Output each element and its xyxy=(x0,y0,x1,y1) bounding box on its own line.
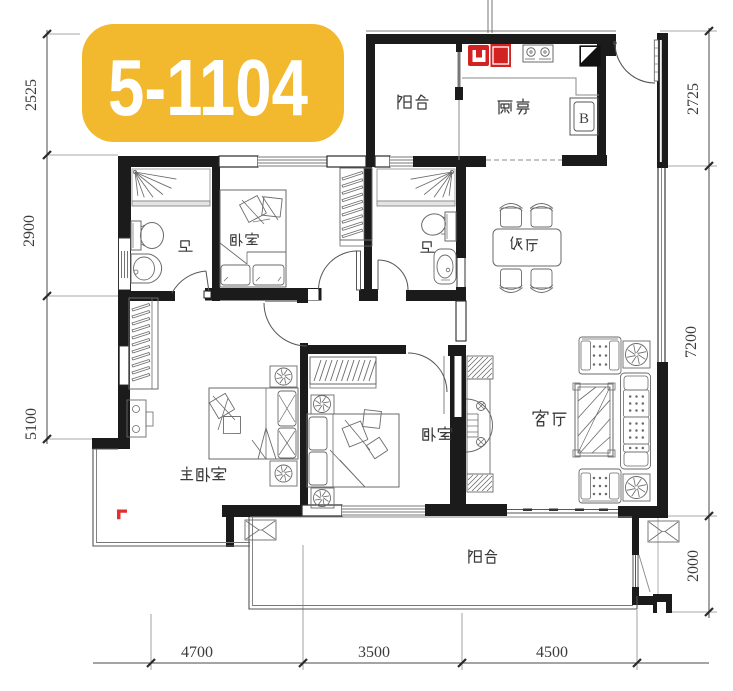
svg-text:2725: 2725 xyxy=(685,83,702,115)
svg-text:B: B xyxy=(579,111,589,127)
svg-text:2900: 2900 xyxy=(21,215,38,247)
svg-text:3500: 3500 xyxy=(358,644,390,661)
svg-text:4700: 4700 xyxy=(181,644,213,661)
svg-text:5100: 5100 xyxy=(23,408,40,440)
svg-text:4500: 4500 xyxy=(536,644,568,661)
svg-text:5-1104: 5-1104 xyxy=(108,43,308,132)
svg-text:2000: 2000 xyxy=(685,550,702,582)
svg-text:2525: 2525 xyxy=(23,79,40,111)
svg-text:7200: 7200 xyxy=(683,326,700,358)
